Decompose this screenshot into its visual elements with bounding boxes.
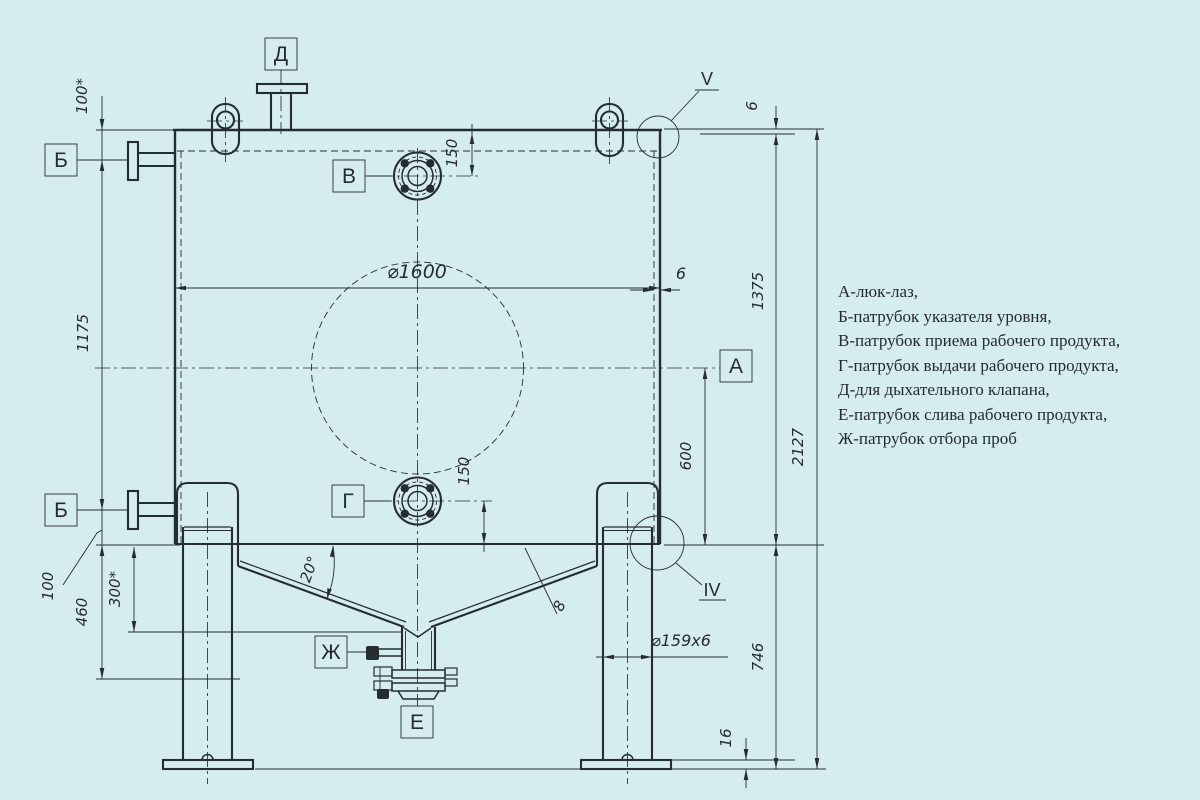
legend-item: А-люк-лаз,	[838, 280, 1188, 305]
detail-label-iv: IV	[703, 580, 720, 600]
label-zh: Ж	[321, 641, 341, 664]
dim-6-wall: 6	[676, 264, 686, 283]
nozzle-zh-sampling	[366, 646, 402, 660]
dim-1175: 1175	[74, 314, 92, 352]
dim-460: 460	[73, 598, 91, 627]
dim-300-star: 300*	[106, 570, 124, 607]
legend-item: Ж-патрубок отбора проб	[838, 427, 1188, 452]
dim-159x6: ⌀159x6	[651, 631, 711, 650]
legend-item: Д-для дыхательного клапана,	[838, 378, 1188, 403]
leader-dim-100	[63, 530, 102, 585]
dim-100-star: 100*	[73, 77, 91, 114]
dim-150-top: 150	[443, 139, 461, 168]
legend-item: Б-патрубок указателя уровня,	[838, 305, 1188, 330]
dim-1600: ⌀1600	[387, 261, 447, 283]
drain-pipe	[402, 627, 435, 670]
label-b-upper: Б	[54, 149, 68, 172]
label-e: Е	[410, 711, 424, 734]
dimension-lines	[63, 96, 819, 788]
nozzle-d-breather	[257, 84, 307, 130]
dim-1375: 1375	[749, 272, 767, 310]
support-leg-right	[581, 483, 671, 769]
legend-item: В-патрубок приема рабочего продукта,	[838, 329, 1188, 354]
dim-16: 16	[717, 728, 735, 747]
label-a: А	[729, 355, 743, 378]
label-connectors	[77, 160, 392, 652]
label-b-lower: Б	[54, 499, 68, 522]
dim-150-bottom: 150	[455, 457, 473, 486]
dim-600: 600	[677, 442, 695, 471]
drain-valve-e	[374, 667, 457, 699]
dim-6-head: 6	[743, 101, 761, 111]
label-g: Г	[342, 490, 353, 513]
legend-item: Е-патрубок слива рабочего продукта,	[838, 403, 1188, 428]
legend: А-люк-лаз, Б-патрубок указателя уровня, …	[838, 280, 1188, 452]
label-boxes	[45, 38, 752, 738]
label-d: Д	[274, 43, 288, 66]
legend-item: Г-патрубок выдачи рабочего продукта,	[838, 354, 1188, 379]
dim-100: 100	[39, 572, 57, 601]
drawing-sheet: Д Б Б В Г А Ж Е V IV 100* 1175 100 460 3…	[0, 0, 1200, 800]
support-leg-left	[163, 483, 253, 769]
dim-2127: 2127	[789, 427, 807, 466]
dimension-texts: 100* 1175 100 460 300* 150 150 ⌀1600 6 6…	[39, 77, 807, 747]
nozzle-b-lower	[128, 491, 177, 529]
dim-746: 746	[749, 643, 767, 672]
extension-lines	[96, 129, 826, 769]
label-v: В	[342, 165, 356, 188]
dim-8: 8	[549, 598, 569, 614]
nozzle-b-upper	[128, 142, 176, 180]
detail-label-v: V	[701, 69, 713, 89]
detail-mark-v	[637, 90, 719, 158]
dim-20deg: 20°	[296, 554, 322, 585]
